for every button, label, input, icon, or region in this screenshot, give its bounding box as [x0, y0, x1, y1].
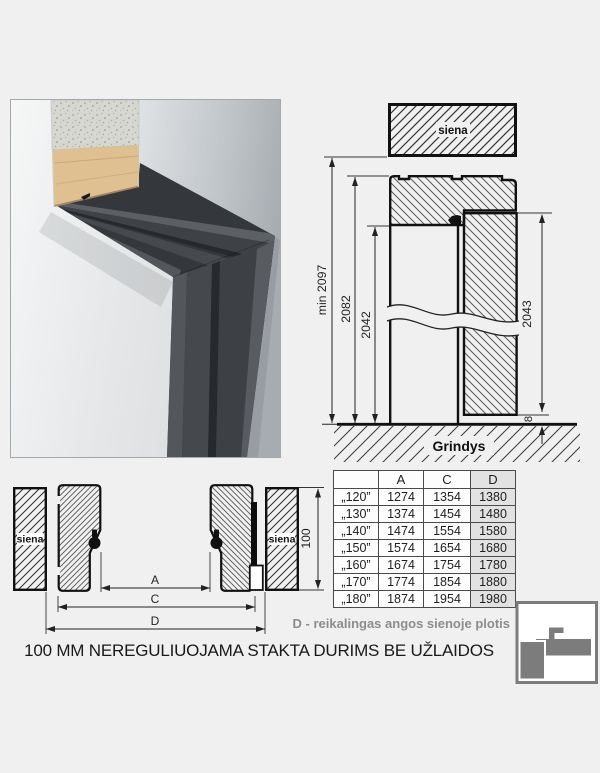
table-cell: 1554	[424, 523, 471, 540]
wall-right-label: siena	[269, 534, 296, 546]
d-note-caption: D - reikalingas angos sienoje plotis	[240, 616, 510, 631]
table-header	[334, 471, 379, 489]
table-row: „180”187419541980	[334, 591, 516, 608]
door-leaf-edge	[251, 502, 257, 573]
row-label: „160”	[334, 557, 379, 574]
size-table: ACD„120”127413541380„130”137414541480„14…	[333, 470, 516, 608]
table-cell: 1754	[424, 557, 471, 574]
table-cell: 1580	[471, 523, 516, 540]
main-caption: 100 MM NEREGULIUOJAMA STAKTA DURIMS BE U…	[4, 641, 514, 661]
dim-depth-label: 100	[299, 528, 313, 548]
row-label: „140”	[334, 523, 379, 540]
table-row: „130”137414541480	[334, 506, 516, 523]
dim-min-height: min 2097	[315, 265, 329, 316]
table-cell: 1354	[424, 489, 471, 506]
dim-leaf-height: 2043	[520, 300, 534, 328]
table-cell: 1674	[379, 557, 424, 574]
table-cell: 1654	[424, 540, 471, 557]
concrete-layer	[51, 100, 139, 150]
row-label: „130”	[334, 506, 379, 523]
table-cell: 1854	[424, 574, 471, 591]
dim-frame-height: 2082	[339, 295, 353, 323]
table-row: „170”177418541880	[334, 574, 516, 591]
lock-strike	[250, 566, 263, 591]
row-label: „170”	[334, 574, 379, 591]
table-cell: 1780	[471, 557, 516, 574]
table-row: „160”167417541780	[334, 557, 516, 574]
gasket-right	[214, 530, 219, 538]
table-cell: 1774	[379, 574, 424, 591]
gasket-left	[92, 530, 97, 538]
row-label: „120”	[334, 489, 379, 506]
wall-left-label: siena	[17, 534, 44, 546]
wall-label: siena	[438, 125, 468, 137]
dim-opening-height: 2042	[359, 311, 373, 339]
table-cell: 1874	[379, 591, 424, 608]
table-cell: 1880	[471, 574, 516, 591]
table-cell: 1274	[379, 489, 424, 506]
dim-floor-gap: 8	[523, 416, 535, 422]
frame-corner-photo	[10, 99, 281, 458]
table-header: C	[424, 471, 471, 489]
table-cell: 1980	[471, 591, 516, 608]
table-cell: 1380	[471, 489, 516, 506]
table-cell: 1474	[379, 523, 424, 540]
row-label: „150”	[334, 540, 379, 557]
table-header: A	[379, 471, 424, 489]
dim-a-label: A	[151, 573, 159, 587]
page: siena Grindys min 2097 2082 2042	[0, 0, 600, 773]
table-row: „120”127413541380	[334, 489, 516, 506]
dim-d-label: D	[151, 614, 160, 628]
floor-label: Grindys	[433, 438, 486, 454]
table-row: „140”147415541580	[334, 523, 516, 540]
brand-logo	[512, 598, 600, 690]
table-cell: 1680	[471, 540, 516, 557]
vertical-section-drawing: siena Grindys min 2097 2082 2042	[300, 80, 600, 475]
dim-c-label: C	[151, 592, 160, 606]
table-header: D	[471, 471, 516, 489]
table-row: „150”157416541680	[334, 540, 516, 557]
table-cell: 1574	[379, 540, 424, 557]
table-cell: 1954	[424, 591, 471, 608]
table-cell: 1374	[379, 506, 424, 523]
logo-block-shape	[520, 641, 546, 680]
row-label: „180”	[334, 591, 379, 608]
table-cell: 1454	[424, 506, 471, 523]
table-cell: 1480	[471, 506, 516, 523]
